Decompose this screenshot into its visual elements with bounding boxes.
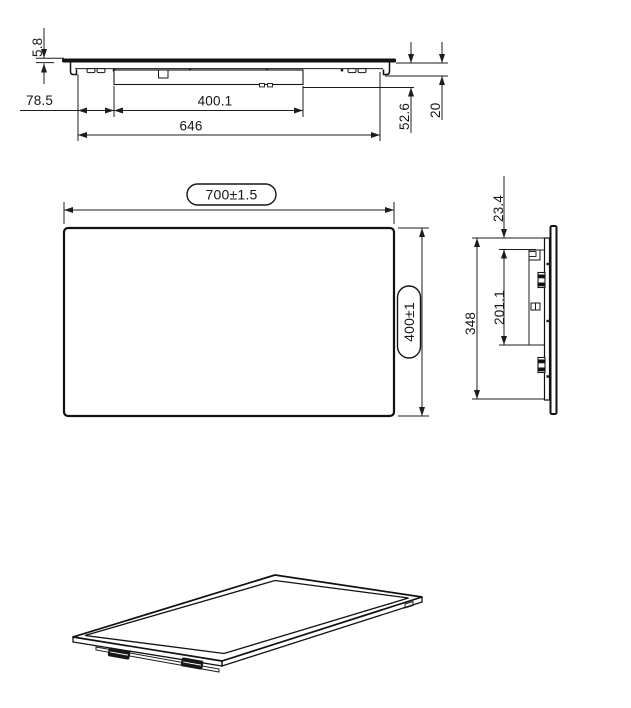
dim-total-depth-label: 52.6 xyxy=(397,103,412,130)
iso-clip-left xyxy=(107,647,130,660)
screw-dot xyxy=(341,69,343,71)
dim-rail-width-label: 400.1 xyxy=(198,94,233,109)
clip-foot xyxy=(348,69,356,73)
clip-foot xyxy=(97,69,105,73)
side-clip-top xyxy=(538,273,546,288)
dim-rail-height-label: 201.1 xyxy=(492,290,507,325)
clip-foot xyxy=(358,69,366,73)
side-rail-outline xyxy=(529,250,545,345)
dim-bracket-offset-label: 78.5 xyxy=(26,93,53,108)
top-profile-view: 5.8 78.5 400.1 646 xyxy=(20,28,448,141)
dim-panel-thickness: 5.8 xyxy=(30,28,64,84)
rail-notch xyxy=(159,70,169,78)
panel-side-slab xyxy=(551,226,557,414)
side-view: 348 23.4 201.1 xyxy=(463,176,557,414)
panel-front-face xyxy=(64,228,394,416)
clip-foot xyxy=(87,69,95,73)
dim-mount-width-label: 646 xyxy=(179,119,202,134)
dim-top-gap-label: 23.4 xyxy=(491,195,506,222)
dim-edge-depth-label: 20 xyxy=(428,103,443,118)
rail-tab xyxy=(260,84,265,87)
mounting-rail xyxy=(114,70,303,85)
dim-panel-width: 700±1.5 xyxy=(64,184,394,224)
drawing-sheet: 5.8 78.5 400.1 646 xyxy=(0,0,631,708)
screw-dot xyxy=(547,320,549,322)
dim-panel-thickness-label: 5.8 xyxy=(30,38,45,57)
side-rail-notch-inner xyxy=(529,252,536,257)
screw-dot xyxy=(547,375,549,377)
front-view: 700±1.5 400±1 xyxy=(64,184,429,416)
screw-dot xyxy=(547,263,549,265)
dim-panel-height: 400±1 xyxy=(398,228,430,416)
dim-bracket-height-label: 348 xyxy=(463,312,478,335)
dim-top-gap: 23.4 xyxy=(491,176,507,238)
side-clip-bottom xyxy=(538,358,546,373)
isometric-view xyxy=(73,575,422,672)
dim-panel-width-label: 700±1.5 xyxy=(206,187,258,203)
rail-tab xyxy=(268,84,273,87)
panel-edge-slab xyxy=(62,59,396,63)
dim-panel-height-label: 400±1 xyxy=(401,302,417,342)
technical-drawing-canvas: 5.8 78.5 400.1 646 xyxy=(0,0,631,708)
right-hook xyxy=(384,63,390,75)
dim-depths: 52.6 20 xyxy=(303,42,448,133)
iso-clip-right xyxy=(180,657,203,670)
